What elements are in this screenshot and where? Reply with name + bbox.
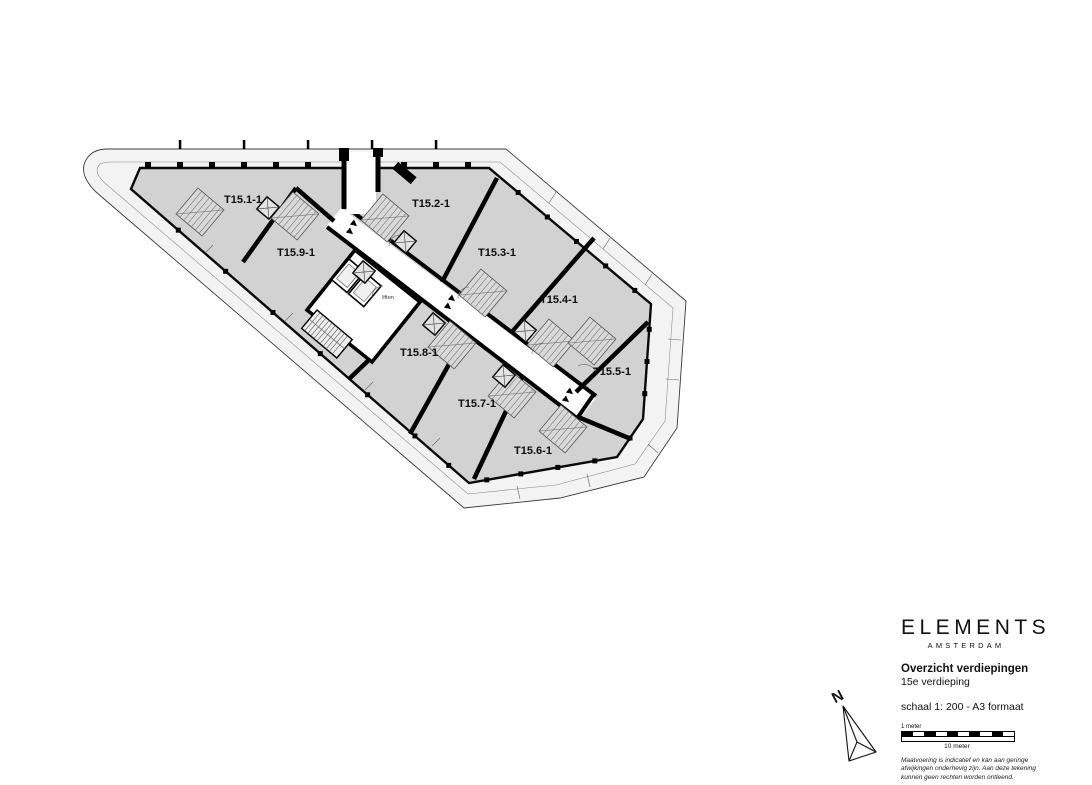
title-block: ELEMENTS AMSTERDAM Overzicht verdiepinge…: [901, 616, 1051, 782]
unit-label: T15.4-1: [540, 294, 578, 306]
disclaimer-line: kunnen geen rechten worden ontleend.: [901, 774, 1051, 782]
unit-label: T15.8-1: [400, 347, 438, 359]
scalebar-segment: [958, 732, 969, 736]
north-arrow: N: [829, 687, 876, 761]
drawing-page: liften T1: [0, 0, 1092, 785]
north-label: N: [829, 687, 847, 707]
brand-city: AMSTERDAM: [901, 641, 1031, 650]
unit-label: T15.6-1: [514, 445, 552, 457]
scale-note: schaal 1: 200 - A3 formaat: [901, 701, 1051, 713]
liften-label: liften: [382, 295, 394, 301]
drawing-title: Overzicht verdiepingen: [901, 663, 1051, 675]
unit-label: T15.2-1: [412, 198, 450, 210]
scalebar-segment: [1003, 732, 1014, 736]
drawing-subtitle: 15e verdieping: [901, 676, 1051, 688]
scalebar-segment: [936, 732, 947, 736]
scalebar-bottom-label: 10 meter: [901, 743, 1013, 750]
unit-label: T15.1-1: [224, 194, 262, 206]
unit-label: T15.9-1: [277, 247, 315, 259]
scalebar-segment: [902, 732, 913, 736]
brand-logo: ELEMENTS: [901, 616, 1051, 640]
scalebar-segment: [924, 732, 935, 736]
unit-label: T15.3-1: [478, 247, 516, 259]
scalebar-segment: [980, 732, 991, 736]
scalebar-segment: [913, 732, 924, 736]
disclaimer-line: Maatvoering is indicatief en kan aan ger…: [901, 757, 1051, 765]
unit-label: T15.5-1: [593, 366, 631, 378]
scalebar-segment: [947, 732, 958, 736]
unit-label: T15.7-1: [458, 398, 496, 410]
scalebar-top-label: 1 meter: [901, 724, 1051, 730]
disclaimer-line: afwijkingen onderhevig zijn. Aan deze te…: [901, 765, 1051, 773]
scalebar-segment: [992, 732, 1003, 736]
disclaimer: Maatvoering is indicatief en kan aan ger…: [901, 757, 1051, 782]
scalebar-segment: [969, 732, 980, 736]
scalebar: [901, 731, 1015, 742]
